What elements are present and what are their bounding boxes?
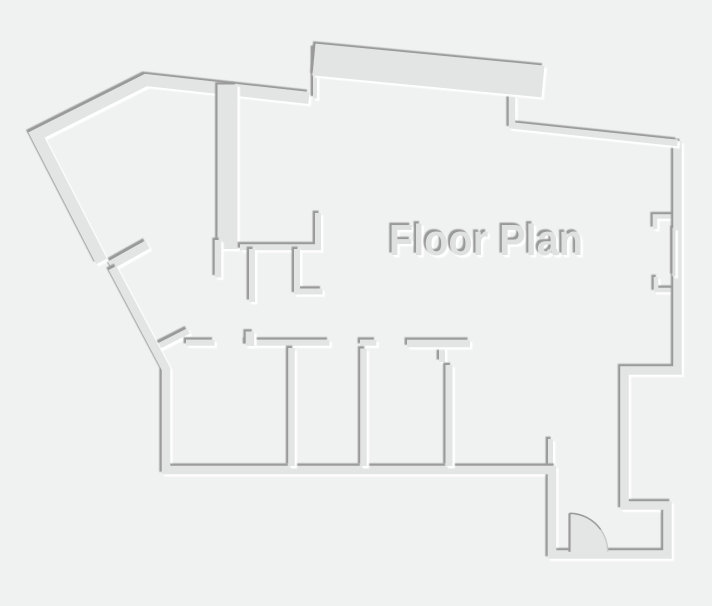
svg-text:Floor Plan: Floor Plan bbox=[389, 216, 583, 265]
